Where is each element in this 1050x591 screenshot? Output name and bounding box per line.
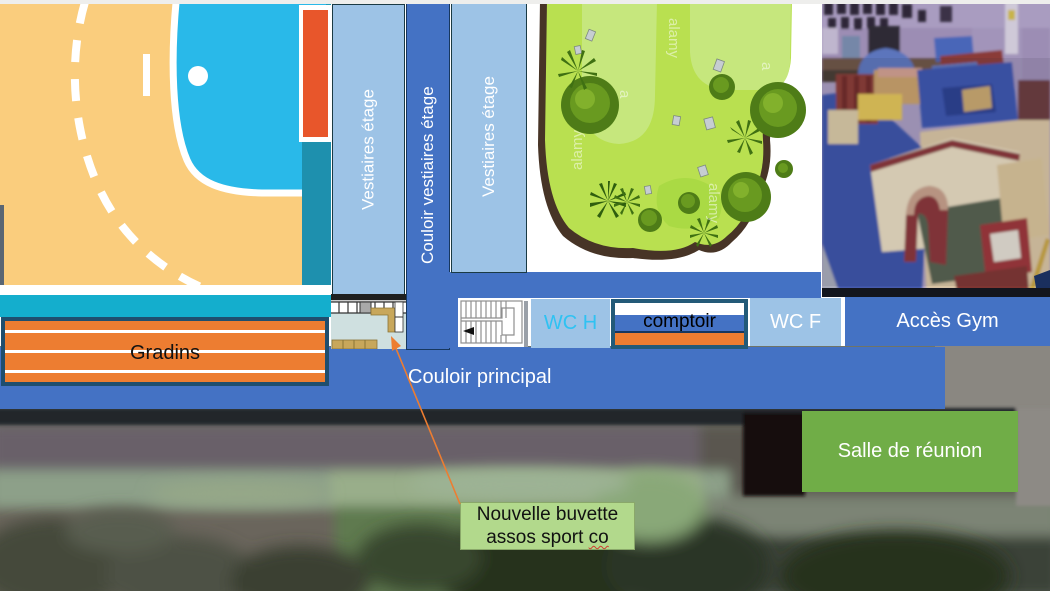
svg-text:alamy: alamy: [705, 183, 722, 224]
svg-text:alamy: alamy: [665, 18, 682, 59]
svg-text:alamy: alamy: [569, 129, 586, 170]
svg-text:a: a: [758, 62, 775, 71]
svg-text:a: a: [616, 90, 633, 99]
